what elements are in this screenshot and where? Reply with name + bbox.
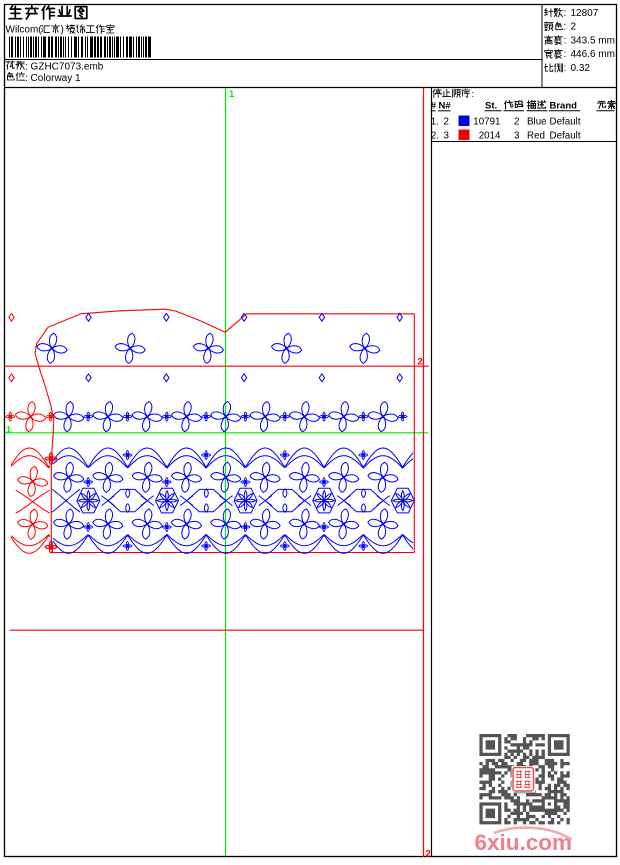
svg-text:2014: 2014 — [479, 130, 501, 141]
svg-text:3: 3 — [444, 130, 450, 141]
svg-text:Default: Default — [550, 116, 581, 127]
svg-text:): ) — [61, 25, 64, 36]
svg-text:Default: Default — [550, 130, 581, 141]
svg-text:446.6 mm: 446.6 mm — [571, 49, 615, 60]
svg-text:: GZHC7073.emb: : GZHC7073.emb — [25, 62, 104, 73]
svg-text:2: 2 — [514, 116, 519, 127]
svg-text:St.: St. — [485, 100, 497, 111]
svg-text:0.32: 0.32 — [571, 63, 591, 74]
svg-text:12807: 12807 — [571, 8, 599, 19]
svg-text:Red: Red — [527, 130, 545, 141]
svg-text:N#: N# — [439, 100, 452, 111]
svg-text::: : — [564, 8, 567, 19]
svg-text:#: # — [431, 100, 437, 111]
svg-text:2: 2 — [571, 22, 577, 33]
svg-text:Wilcom(: Wilcom( — [6, 25, 43, 36]
svg-text:1.: 1. — [431, 116, 439, 127]
svg-text:Blue: Blue — [527, 116, 547, 127]
svg-text:2: 2 — [418, 357, 423, 368]
svg-text:2: 2 — [426, 849, 431, 860]
svg-text::: : — [564, 63, 567, 74]
svg-text:2.: 2. — [431, 130, 439, 141]
svg-text:3: 3 — [514, 130, 520, 141]
svg-text:10791: 10791 — [473, 116, 500, 127]
svg-text:343.5 mm: 343.5 mm — [571, 35, 615, 46]
svg-text:2: 2 — [444, 116, 449, 127]
svg-text:: Colorway 1: : Colorway 1 — [25, 73, 81, 84]
svg-text:1: 1 — [6, 425, 12, 436]
svg-text::: : — [564, 49, 567, 60]
svg-text:Brand: Brand — [550, 100, 578, 111]
svg-text::: : — [564, 22, 567, 33]
svg-text:1: 1 — [229, 89, 235, 100]
svg-text::: : — [564, 35, 567, 46]
svg-text::: : — [472, 89, 475, 100]
